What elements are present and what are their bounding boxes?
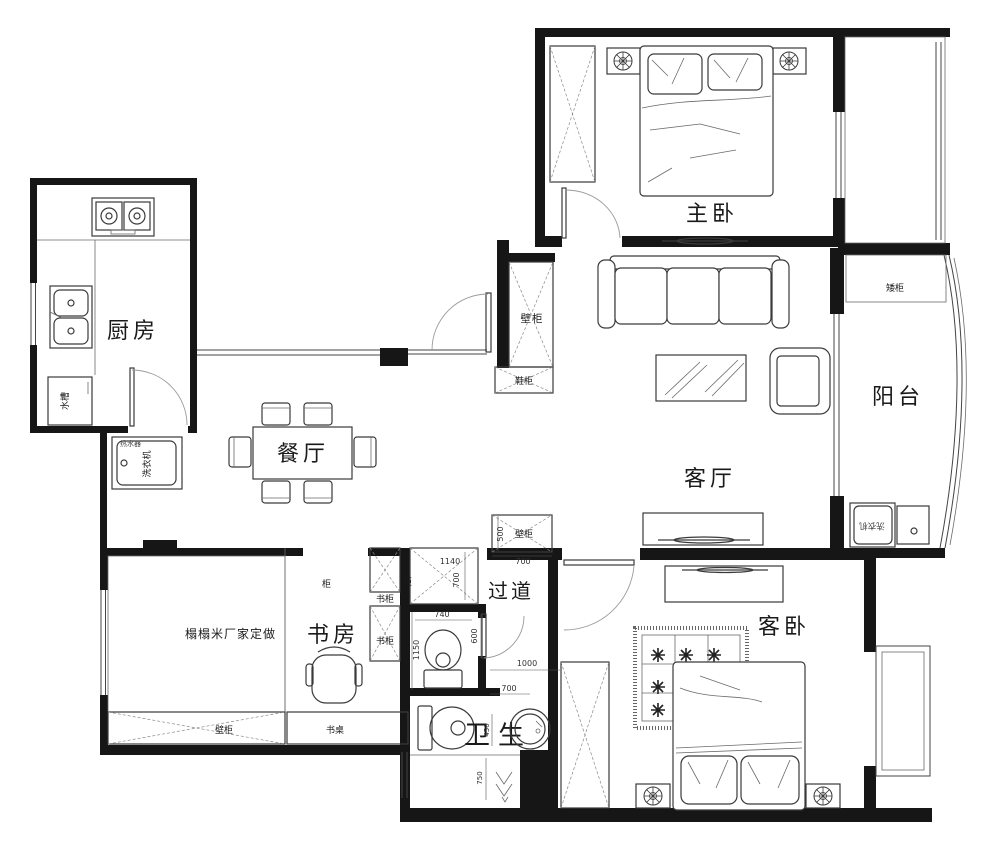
floor-drain-icon: [496, 772, 512, 802]
stove: [92, 198, 154, 236]
kitchen-door-leaf: [130, 368, 134, 426]
dim-700c: 700: [501, 684, 516, 693]
balcony-washing-machine-label: 洗衣机: [859, 520, 885, 531]
sink-cabinet: 水槽: [48, 377, 92, 425]
entry-wall-cabinet-label: 壁柜: [521, 312, 544, 325]
laundry-niche: 热水器 洗衣机: [112, 437, 182, 489]
master-bedroom-label: 主卧: [686, 202, 738, 227]
sofa: [598, 256, 789, 328]
tv-cabinet: [643, 513, 763, 545]
desk-chair: [306, 647, 362, 703]
study-top-cabinet-label: 柜: [322, 578, 331, 590]
water-heater-label: 热水器: [120, 439, 141, 448]
desk: [287, 712, 408, 744]
balcony: 矮柜 阳台 洗衣机: [846, 255, 946, 547]
guest-door-leaf: [564, 560, 634, 565]
guest-bedroom-label: 客卧: [758, 615, 810, 640]
balcony-washer: 洗衣机: [850, 503, 895, 547]
master-door-leaf: [562, 188, 566, 238]
dim-750: 750: [476, 771, 484, 784]
balcony-basin: [897, 506, 929, 544]
master-bed: [640, 46, 773, 196]
walls: [30, 28, 950, 822]
dim-1140: 1140: [440, 557, 460, 566]
dim-450: 450: [483, 723, 491, 736]
shoe-cabinet-label: 鞋柜: [515, 375, 533, 387]
wc-toilet: [424, 630, 462, 688]
low-cabinet: [846, 255, 946, 302]
dim-500: 500: [496, 526, 505, 541]
guest-tv-cabinet: [665, 566, 783, 602]
bookcase-label-2: 书柜: [376, 635, 394, 647]
living-room-label: 客厅: [684, 467, 736, 492]
guest-bed: [673, 662, 805, 810]
doors: [130, 188, 634, 658]
corridor-cabinet-label: 柜: [403, 576, 412, 588]
wc-door-leaf: [482, 614, 486, 658]
sink-label: 水槽: [59, 392, 71, 410]
dining-room: 餐厅: [229, 403, 376, 503]
dim-1000: 1000: [517, 659, 537, 668]
hall-wall-cabinet-label: 壁柜: [515, 528, 533, 540]
washing-machine-label: 洗衣机: [141, 450, 153, 477]
study-wall-cabinet-label: 壁柜: [215, 724, 233, 736]
dim-1150: 1150: [412, 640, 421, 660]
coffee-table: [656, 355, 746, 401]
bookcase-label-1: 书柜: [376, 593, 394, 605]
dim-700a: 700: [515, 557, 530, 566]
armchair: [770, 348, 830, 414]
master-bedroom: 主卧: [550, 46, 806, 244]
low-cabinet-label: 矮柜: [886, 282, 904, 294]
floor-plan-drawing: 水槽 厨房 热水器 洗衣机 餐厅 壁柜 鞋柜: [0, 0, 1000, 846]
balcony-label: 阳台: [872, 385, 924, 410]
floor-plan-page: 水槽 厨房 热水器 洗衣机 餐厅 壁柜 鞋柜: [0, 0, 1000, 846]
study-label: 书房: [307, 623, 359, 648]
study: 榻榻米厂家定做 柜 书柜 书柜 书桌 壁柜 书房: [108, 548, 408, 744]
entry-door-leaf: [486, 293, 491, 352]
kitchen-label: 厨房: [107, 319, 159, 344]
dim-600: 600: [470, 628, 479, 643]
dining-label: 餐厅: [277, 442, 329, 467]
dim-740: 740: [434, 610, 449, 619]
tatami-label: 榻榻米厂家定做: [185, 626, 276, 641]
kitchen-sink: [50, 286, 92, 348]
hallway-label: 过道: [488, 579, 534, 603]
living-room: 客厅: [598, 256, 830, 545]
bathroom-label: 卫生: [464, 721, 532, 751]
dim-700b: 700: [452, 572, 461, 587]
desk-label: 书桌: [326, 724, 344, 736]
windows: [31, 37, 966, 798]
guest-bedroom: 客卧: [561, 566, 840, 810]
kitchen: 水槽 厨房: [37, 198, 190, 425]
bookcases: 书柜 书柜: [370, 548, 400, 661]
